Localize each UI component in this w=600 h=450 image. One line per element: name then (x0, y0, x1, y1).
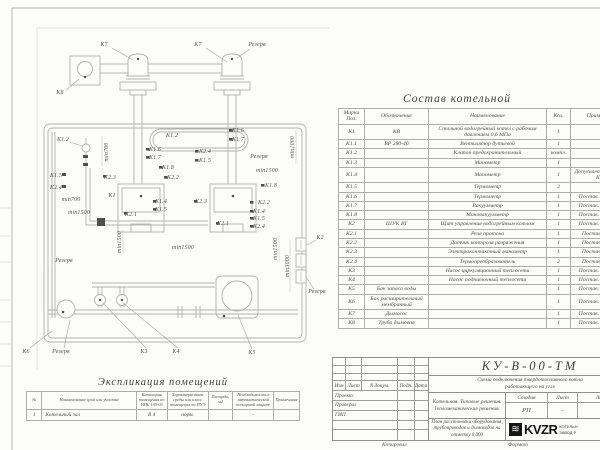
revision-cell (415, 391, 427, 400)
col-name: Вакуумметр (429, 201, 547, 210)
col-qty: 1 (547, 192, 571, 201)
col-qty: 1 (547, 266, 571, 275)
col-designation: ШУК ВТ (365, 220, 429, 229)
kvzr-logo-text: KVZR (524, 422, 557, 437)
project-description: Котельная. Типовые решения. Тепломеханич… (429, 393, 506, 418)
composition-row: К1.5Термометр2 (339, 183, 600, 192)
col-category: В 4 (136, 409, 167, 420)
revision-empty-row (333, 366, 428, 374)
col-qty: 1 (547, 211, 571, 220)
plan-label: min1000 (290, 136, 296, 158)
revision-cell (398, 374, 415, 381)
col-name: Насос циркуляционный теплосети (429, 266, 547, 275)
revision-cell: Подп. (398, 381, 415, 390)
plan-label: К2.4 (50, 185, 62, 191)
revision-cell (346, 358, 362, 365)
col-designation: Труба дымовая (365, 319, 429, 328)
col-qty: 1 (547, 285, 571, 294)
col-designation: Бак запаса воды (365, 285, 429, 294)
col-name: Манометр (429, 158, 547, 167)
col-pos: К2.2 (339, 238, 365, 247)
document-title: Схема подключения твердотопливного котла… (468, 377, 593, 390)
col-note: Примечание (274, 392, 300, 410)
revision-empty-row (333, 430, 428, 440)
col-qty: компл. (547, 149, 571, 158)
revision-cell (398, 421, 415, 430)
col-qty: 1 (547, 319, 571, 328)
col-qty: 1 (547, 158, 571, 167)
plan-label: К1.7 (149, 155, 161, 161)
col-class: норм. (167, 409, 208, 420)
revision-empty-row (333, 358, 428, 366)
plan-label: К1.5 (199, 158, 211, 164)
plan-label: min1500 (117, 231, 123, 253)
revision-role-row: Проверил (333, 401, 428, 411)
composition-row: К1КВСтальной водогрейный котел с рабочим… (339, 124, 600, 140)
plan-label: К1 (108, 193, 115, 199)
col-room-name: Наименование цеха или участка (42, 392, 136, 410)
col-designation (365, 149, 429, 158)
col-pos: К1.4 (339, 167, 365, 183)
plan-label: К2.1 (125, 212, 137, 218)
col-note (571, 158, 600, 167)
col-note: Постав. по соглас. (571, 211, 600, 220)
plan-label: К1.6 (232, 128, 244, 134)
composition-row: К4Насос подпиточный теплосети1Постав. по… (339, 276, 600, 285)
revision-cell: Проект. (333, 391, 398, 400)
col-fire: - (233, 409, 274, 420)
col-no: № (27, 392, 42, 410)
col-note: Постав. с ШУК (571, 229, 600, 238)
plan-label: min700 (62, 197, 81, 203)
col-area: Площадь, м2 (208, 392, 233, 410)
composition-body: К1КВСтальной водогрейный котел с рабочим… (339, 124, 600, 328)
plan-label: К5 (248, 350, 255, 356)
revision-empty-row (333, 421, 428, 431)
col-pos: К3 (339, 266, 365, 275)
col-name: Датчик контроля разряжения (429, 238, 547, 247)
revision-cell: ГИП (333, 411, 398, 420)
composition-title: Состав котельной (338, 93, 576, 105)
revision-cell (333, 374, 346, 381)
revision-role-row: Проект. (333, 391, 428, 401)
drawing-sheet: К7К7РезервК8К1.2min700К1.5К2.4min700min1… (0, 0, 600, 450)
plan-label: К1.2 (166, 133, 178, 139)
explication-row: 1Котельный залВ 4норм.- (27, 409, 300, 420)
plan-label: К2.1 (217, 221, 229, 227)
sheet-value: - (548, 403, 578, 418)
composition-header: Марка Поз.ОбозначениеНаименованиеКол.При… (339, 109, 600, 125)
col-name: Электроконтактный манометр (429, 248, 547, 257)
revision-table: ИзмЛистN докум.Подп.ДатаПроект.ПроверилГ… (333, 358, 429, 440)
col-name: Реле протока (429, 229, 547, 238)
col-name: Термометр (429, 192, 547, 201)
plan-label: К2.2 (258, 200, 270, 206)
revision-cell: Изм (333, 381, 346, 390)
col-name: Насос подпиточный теплосети (429, 276, 547, 285)
revision-cell (398, 411, 415, 420)
explication-body: 1Котельный залВ 4норм.- (27, 409, 300, 420)
revision-cell (333, 430, 398, 440)
kvzr-logo-icon: ≋ (509, 423, 522, 436)
composition-row: К1.7Вакуумметр1Постав. по соглас. (339, 201, 600, 210)
col-designation: КВ (365, 124, 429, 140)
plan-label: К1.6 (149, 147, 161, 153)
format-label: Формат (508, 442, 528, 448)
sheets-value: - (578, 403, 600, 418)
col-designation: Бак расширительный мембранный (365, 294, 429, 310)
revision-cell (398, 366, 415, 373)
col-name: Стальной водогрейный котел с рабочим дав… (429, 124, 547, 140)
col-designation (365, 167, 429, 183)
revision-cell: Лист (346, 381, 362, 390)
col-qty: 1 (547, 294, 571, 310)
col-note: Постав. по соглас. (571, 201, 600, 210)
col-name: Вентилятор дутьевой (429, 140, 547, 149)
col-designation (365, 266, 429, 275)
col-name: Манометр (429, 167, 547, 183)
revision-cell (398, 358, 415, 365)
plan-label: К3 (140, 349, 147, 355)
composition-row: К1.1ВР 280-46Вентилятор дутьевой1 (339, 140, 600, 149)
col-qty: 1 (547, 140, 571, 149)
composition-row: К6Бак расширительный мембранный1Постав. … (339, 294, 600, 310)
col-pos: К1.8 (339, 211, 365, 220)
revision-cell (415, 358, 427, 365)
col-note: Постав. по соглас. (571, 266, 600, 275)
composition-row: К7Дымосос1Постав. по соглас. (339, 310, 600, 319)
col-note (274, 409, 300, 420)
composition-row: К2.3Электроконтактный манометр1Постав. с… (339, 248, 600, 257)
col-designation (365, 192, 429, 201)
col-designation (365, 229, 429, 238)
col-fire: Необходимость в автоматической пожарной … (233, 392, 274, 410)
revision-empty-row (333, 374, 428, 382)
col-pos: К8 (339, 319, 365, 328)
col-note: Постав. с ШУК (571, 248, 600, 257)
col-note: Примечание (571, 109, 600, 125)
plan-label: min3000 (285, 255, 291, 277)
composition-row: К1.4Манометр1Допускается зам. поз. К2.3 (339, 167, 600, 183)
plan-label: К6 (22, 349, 29, 355)
plan-label: min1500 (256, 168, 278, 174)
stage-value: РП (506, 403, 548, 418)
composition-row: К3Насос циркуляционный теплосети1Постав.… (339, 266, 600, 275)
col-name: Термометр (429, 183, 547, 192)
col-area (208, 409, 233, 420)
revision-cell (415, 374, 427, 381)
col-pos: К4 (339, 276, 365, 285)
plan-label: К1.5 (253, 216, 265, 222)
plan-label: К4 (172, 349, 179, 355)
title-block: ИзмЛистN докум.Подп.ДатаПроект.ПроверилГ… (332, 357, 600, 441)
col-qty: 2 (547, 183, 571, 192)
col-name (429, 310, 547, 319)
col-qty: 1 (547, 229, 571, 238)
revision-cell (415, 430, 427, 440)
col-pos: Марка Поз. (339, 109, 365, 125)
col-name (429, 319, 547, 328)
plan-label: К2.3 (195, 199, 207, 205)
document-code: КУ-В-00-ТМ (429, 358, 600, 376)
col-designation (365, 183, 429, 192)
revision-cell (398, 401, 415, 410)
revision-cell: N докум. (362, 381, 398, 390)
col-name: Наименование (429, 109, 547, 125)
col-qty: 1 (547, 124, 571, 140)
col-note (571, 183, 600, 192)
revision-header-row: ИзмЛистN докум.Подп.Дата (333, 381, 428, 391)
col-pos: К5 (339, 285, 365, 294)
col-pos: К1.1 (339, 140, 365, 149)
revision-role-row: ГИП (333, 411, 428, 421)
revision-cell (415, 421, 427, 430)
col-room-name: Котельный зал (42, 409, 136, 420)
col-pos: К1 (339, 124, 365, 140)
col-qty: Кол. (547, 109, 571, 125)
col-pos: К6 (339, 294, 365, 310)
sheets-label: Листов (578, 393, 600, 402)
col-note (571, 149, 600, 158)
col-designation: Обозначение (365, 109, 429, 125)
col-note (571, 140, 600, 149)
col-designation: ВР 280-46 (365, 140, 429, 149)
col-name: Термопреобразователь (429, 257, 547, 266)
col-pos: К7 (339, 310, 365, 319)
plan-label: К1.7 (232, 137, 244, 143)
col-note: Постав. по соглас. (571, 294, 600, 310)
revision-cell (333, 421, 398, 430)
col-designation (365, 248, 429, 257)
copied-label: Копировал (382, 442, 407, 448)
plan-label: min1500 (68, 210, 90, 216)
explication-title: Экспликация помещений (26, 377, 300, 388)
plan-label: К2 (316, 235, 323, 241)
plan-label: Резерв (250, 154, 268, 160)
col-pos: К2 (339, 220, 365, 229)
col-note: Постав. по соглас. (571, 310, 600, 319)
col-pos: К2.3 (339, 248, 365, 257)
sheet-label: Лист (548, 393, 578, 402)
plan-label: min700 (104, 143, 110, 162)
col-note: Постав. по соглас. (571, 220, 600, 229)
plan-label: К2.2 (167, 175, 179, 181)
col-name: Щит управления водогрейным котлом (429, 220, 547, 229)
col-designation (365, 276, 429, 285)
composition-row: К8Труба дымовая1Постав. по соглас. (339, 319, 600, 328)
plan-label: К1.5 (50, 173, 62, 179)
plan-label: К1.8 (265, 183, 277, 189)
col-designation (365, 257, 429, 266)
revision-cell: Дата (415, 381, 427, 390)
col-note: Постав. по соглас. (571, 276, 600, 285)
col-pos: К1.5 (339, 183, 365, 192)
col-designation (365, 158, 429, 167)
col-note: Постав. с ШУК (571, 257, 600, 266)
col-no: 1 (27, 409, 42, 420)
col-note: Постав. по соглас. (571, 319, 600, 328)
composition-row: К2.1Реле протока1Постав. с ШУК (339, 229, 600, 238)
explication-header: №Наименование цеха или участкаКатегория … (27, 392, 300, 410)
revision-cell (415, 366, 427, 373)
col-pos: К1.6 (339, 192, 365, 201)
col-note: Постав. по соглас. (571, 285, 600, 294)
col-name (429, 294, 547, 310)
revision-cell (333, 366, 346, 373)
revision-cell (415, 411, 427, 420)
revision-cell (398, 391, 415, 400)
revision-cell (362, 366, 398, 373)
col-designation (365, 238, 429, 247)
kvzr-logo-subtext: КОТЕЛЬН ЗАВОД Р (559, 424, 577, 435)
plan-label: К1.8 (162, 165, 174, 171)
revision-cell (362, 374, 398, 381)
explication-table: Экспликация помещений №Наименование цеха… (26, 377, 300, 421)
plan-label: К1.2 (57, 137, 69, 143)
plan-label: К8 (56, 90, 63, 96)
col-pos: К2.4 (339, 257, 365, 266)
plan-label: К7 (194, 42, 201, 48)
plan-label: min1500 (273, 238, 279, 260)
revision-cell (346, 366, 362, 373)
col-name: Клапан предохранительный (429, 149, 547, 158)
revision-cell (333, 358, 346, 365)
plan-label: Резерв (55, 258, 73, 264)
plan-label: К1.5 (155, 207, 167, 213)
col-qty: 1 (547, 276, 571, 285)
plan-label: Резерв (308, 289, 326, 295)
col-note: Постав. с ШУК (571, 238, 600, 247)
col-pos: К2.1 (339, 229, 365, 238)
plan-label: К2.4 (199, 149, 211, 155)
composition-row: К2.4Термопреобразователь2Постав. с ШУК (339, 257, 600, 266)
composition-row: К5Бак запаса воды1Постав. по соглас. (339, 285, 600, 294)
plan-label: К2.4 (253, 224, 265, 230)
composition-table: Состав котельной Марка Поз.ОбозначениеНа… (338, 93, 600, 329)
col-qty: 1 (547, 201, 571, 210)
col-qty: 1 (547, 220, 571, 229)
col-pos: К1.2 (339, 149, 365, 158)
col-qty: 1 (547, 248, 571, 257)
sheet-title: План расстановки оборудования, трубопров… (429, 419, 506, 440)
col-qty: 1 (547, 310, 571, 319)
plan-label: К7 (100, 42, 107, 48)
col-class: Характеристика среды или класс помещения… (167, 392, 208, 410)
col-qty: 2 (547, 257, 571, 266)
col-note: Допускается зам. поз. К2.3 (571, 167, 600, 183)
revision-cell: Проверил (333, 401, 398, 410)
col-qty: 1 (547, 238, 571, 247)
col-designation: Дымосос (365, 310, 429, 319)
revision-cell (362, 358, 398, 365)
plan-label: Резерв (52, 349, 70, 355)
col-note: Постав. по соглас. (571, 192, 600, 201)
col-name (429, 285, 547, 294)
plan-label: min1500 (172, 245, 194, 251)
plan-label: Резерв (248, 42, 266, 48)
col-designation (365, 211, 429, 220)
company-logo: ≋ KVZR КОТЕЛЬН ЗАВОД Р (506, 419, 600, 440)
revision-cell (398, 430, 415, 440)
col-category: Категория помещения по НПБ 105-03 (136, 392, 167, 410)
composition-row: К2ШУК ВТЩит управления водогрейным котло… (339, 220, 600, 229)
composition-row: К1.2Клапан предохранительныйкомпл. (339, 149, 600, 158)
plan-label: К2.3 (104, 175, 116, 181)
composition-row: К2.2Датчик контроля разряжения1Постав. с… (339, 238, 600, 247)
col-pos: К1.3 (339, 158, 365, 167)
composition-row: К1.8Мановакуумметр1Постав. по соглас. (339, 211, 600, 220)
col-pos: К1.7 (339, 201, 365, 210)
col-name: Мановакуумметр (429, 211, 547, 220)
revision-cell (346, 374, 362, 381)
col-note (571, 124, 600, 140)
composition-row: К1.6Термометр1Постав. по соглас. (339, 192, 600, 201)
revision-cell (415, 401, 427, 410)
stage-label: Стадия (506, 393, 548, 402)
plan-label: К1.4 (253, 209, 265, 215)
col-designation (365, 201, 429, 210)
col-qty: 1 (547, 167, 571, 183)
plan-label: К1.4 (155, 199, 167, 205)
composition-row: К1.3Манометр1 (339, 158, 600, 167)
